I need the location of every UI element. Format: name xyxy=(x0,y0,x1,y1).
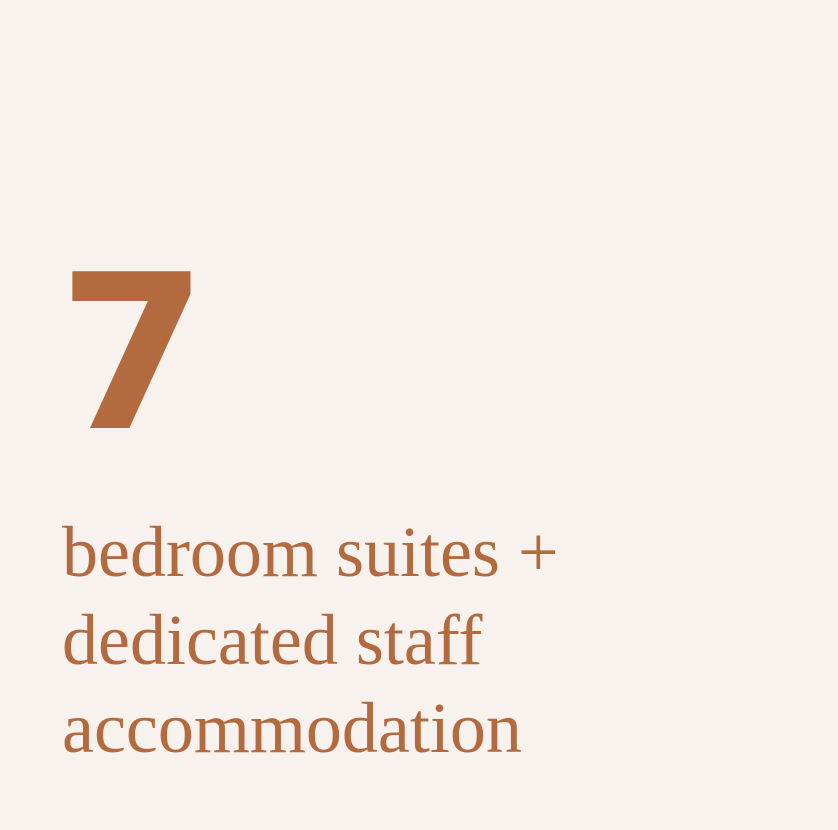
stat-description-line-3: accommodation xyxy=(62,684,559,772)
stat-description: bedroom suites + dedicated staff accommo… xyxy=(62,508,559,772)
stat-description-line-2: dedicated staff xyxy=(62,596,559,684)
stat-description-line-1: bedroom suites + xyxy=(62,508,559,596)
stat-block: 7 bedroom suites + dedicated staff accom… xyxy=(0,0,838,830)
stat-number: 7 xyxy=(58,246,208,461)
